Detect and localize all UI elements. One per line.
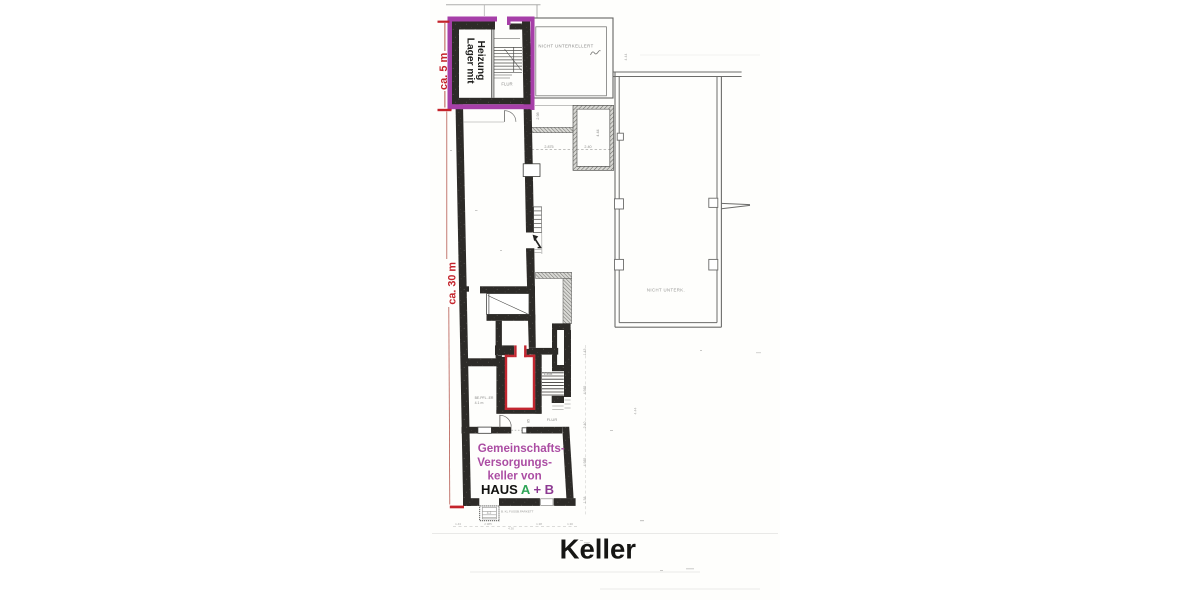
svg-text:ca. 5 m: ca. 5 m (438, 52, 450, 90)
svg-text:2.98: 2.98 (536, 112, 540, 119)
svg-text:1.43: 1.43 (583, 349, 587, 356)
svg-text:NICHT UNTERKELLERT: NICHT UNTERKELLERT (538, 44, 593, 49)
svg-text:2.875: 2.875 (544, 145, 553, 149)
svg-text:4.44: 4.44 (624, 54, 628, 61)
svg-text:4.985: 4.985 (583, 386, 587, 395)
svg-text:2.985: 2.985 (484, 522, 492, 526)
svg-text:keller von: keller von (488, 469, 542, 482)
svg-text:B. KL FUSSB.PARKETT: B. KL FUSSB.PARKETT (501, 510, 534, 514)
svg-text:4.44: 4.44 (634, 408, 638, 415)
svg-text:4.2: 4.2 (487, 511, 492, 515)
svg-text:Heizung: Heizung (475, 41, 486, 81)
svg-text:Keller: Keller (560, 534, 637, 565)
svg-text:1.43: 1.43 (455, 522, 461, 526)
svg-text:4.1 m: 4.1 m (475, 401, 484, 405)
svg-text:Gemeinschafts-: Gemeinschafts- (478, 442, 565, 455)
svg-text:FLUR: FLUR (501, 82, 512, 87)
svg-text:ca. 30 m: ca. 30 m (446, 262, 458, 305)
svg-text:1.38: 1.38 (536, 522, 542, 526)
svg-text:HAUS A + B: HAUS A + B (481, 482, 554, 497)
svg-text:Lager mit: Lager mit (465, 38, 476, 84)
svg-text:4.44: 4.44 (596, 129, 600, 136)
svg-text:FLUR: FLUR (547, 417, 558, 422)
svg-text:2.40: 2.40 (584, 145, 591, 149)
svg-text:85: 85 (527, 419, 531, 423)
svg-text:1.30B: 1.30B (544, 372, 553, 376)
svg-text:4.30: 4.30 (508, 527, 514, 531)
svg-text:1.38: 1.38 (583, 497, 587, 504)
svg-text:4.985: 4.985 (583, 458, 587, 467)
svg-text:1.30: 1.30 (567, 522, 573, 526)
svg-text:Versorgungs-: Versorgungs- (477, 456, 552, 469)
svg-text:NICHT UNTERK.: NICHT UNTERK. (647, 288, 685, 293)
svg-text:BE.PFL..ER: BE.PFL..ER (475, 396, 494, 400)
svg-text:2.40: 2.40 (583, 422, 587, 429)
